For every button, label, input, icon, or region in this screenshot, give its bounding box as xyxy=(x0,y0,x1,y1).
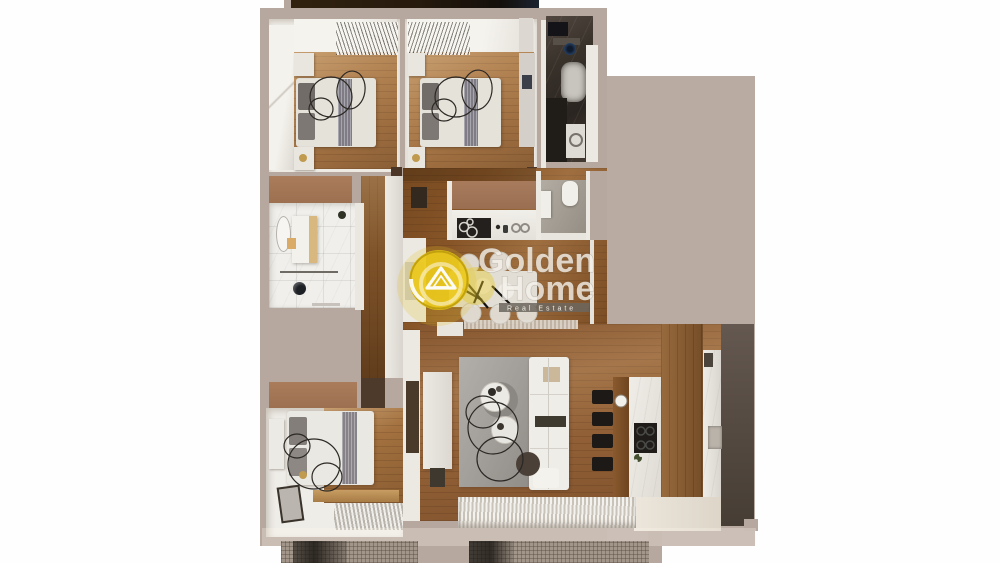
svg-text:Real Estate: Real Estate xyxy=(507,306,576,313)
svg-text:Home: Home xyxy=(500,270,594,308)
